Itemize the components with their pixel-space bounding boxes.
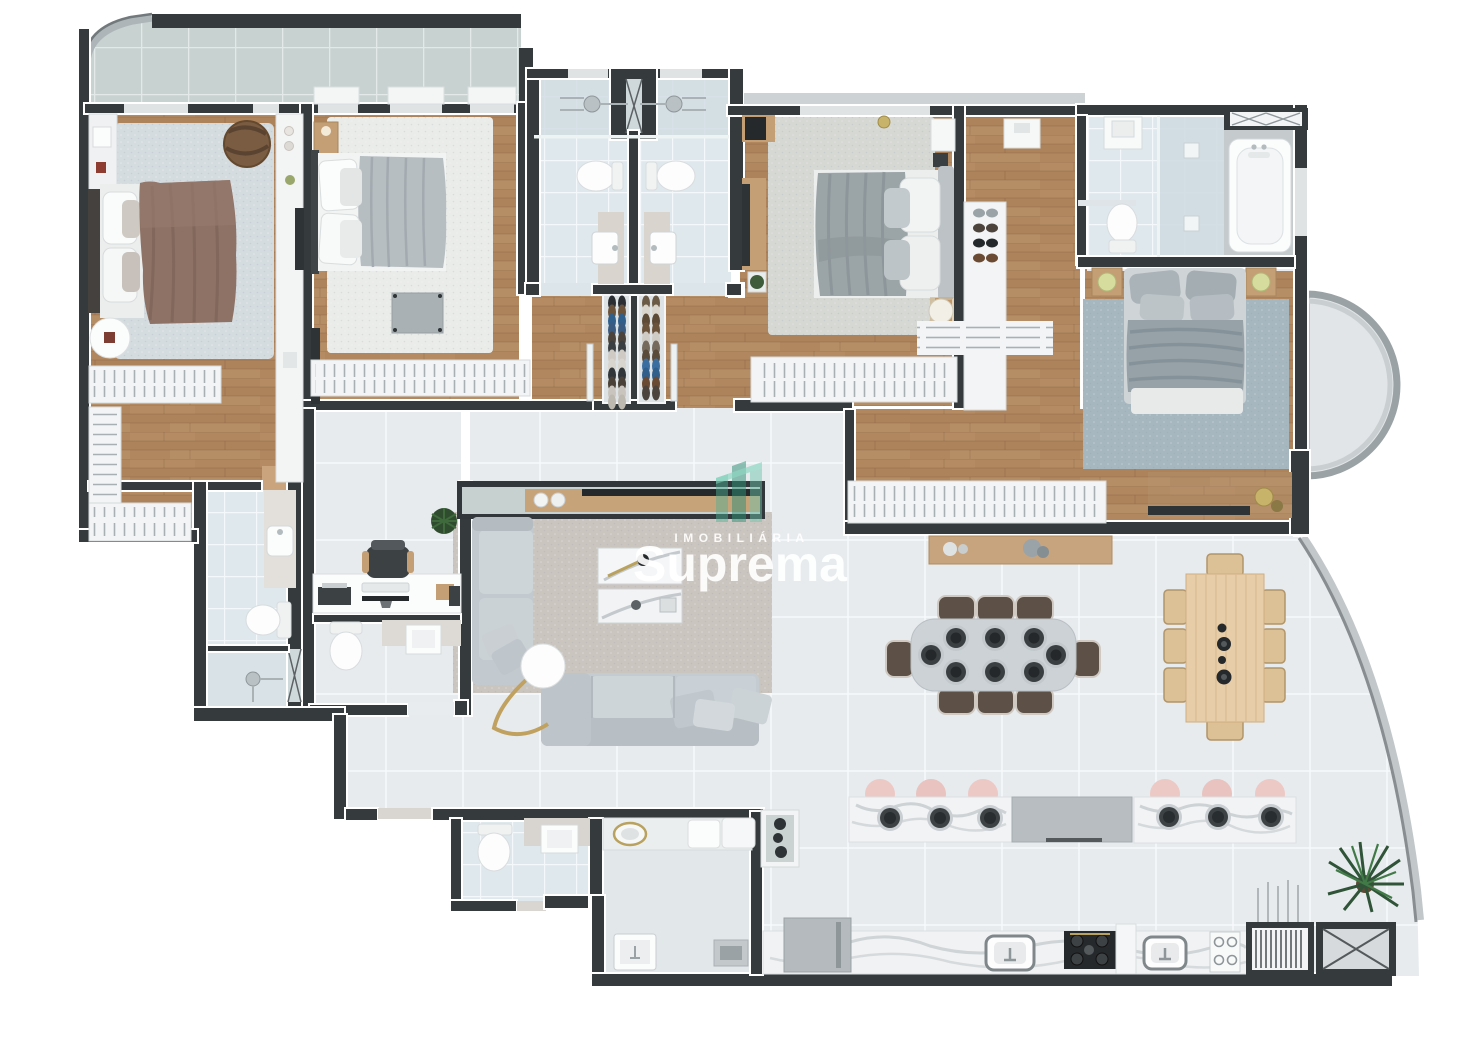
svg-text:Suprema: Suprema	[633, 536, 848, 592]
